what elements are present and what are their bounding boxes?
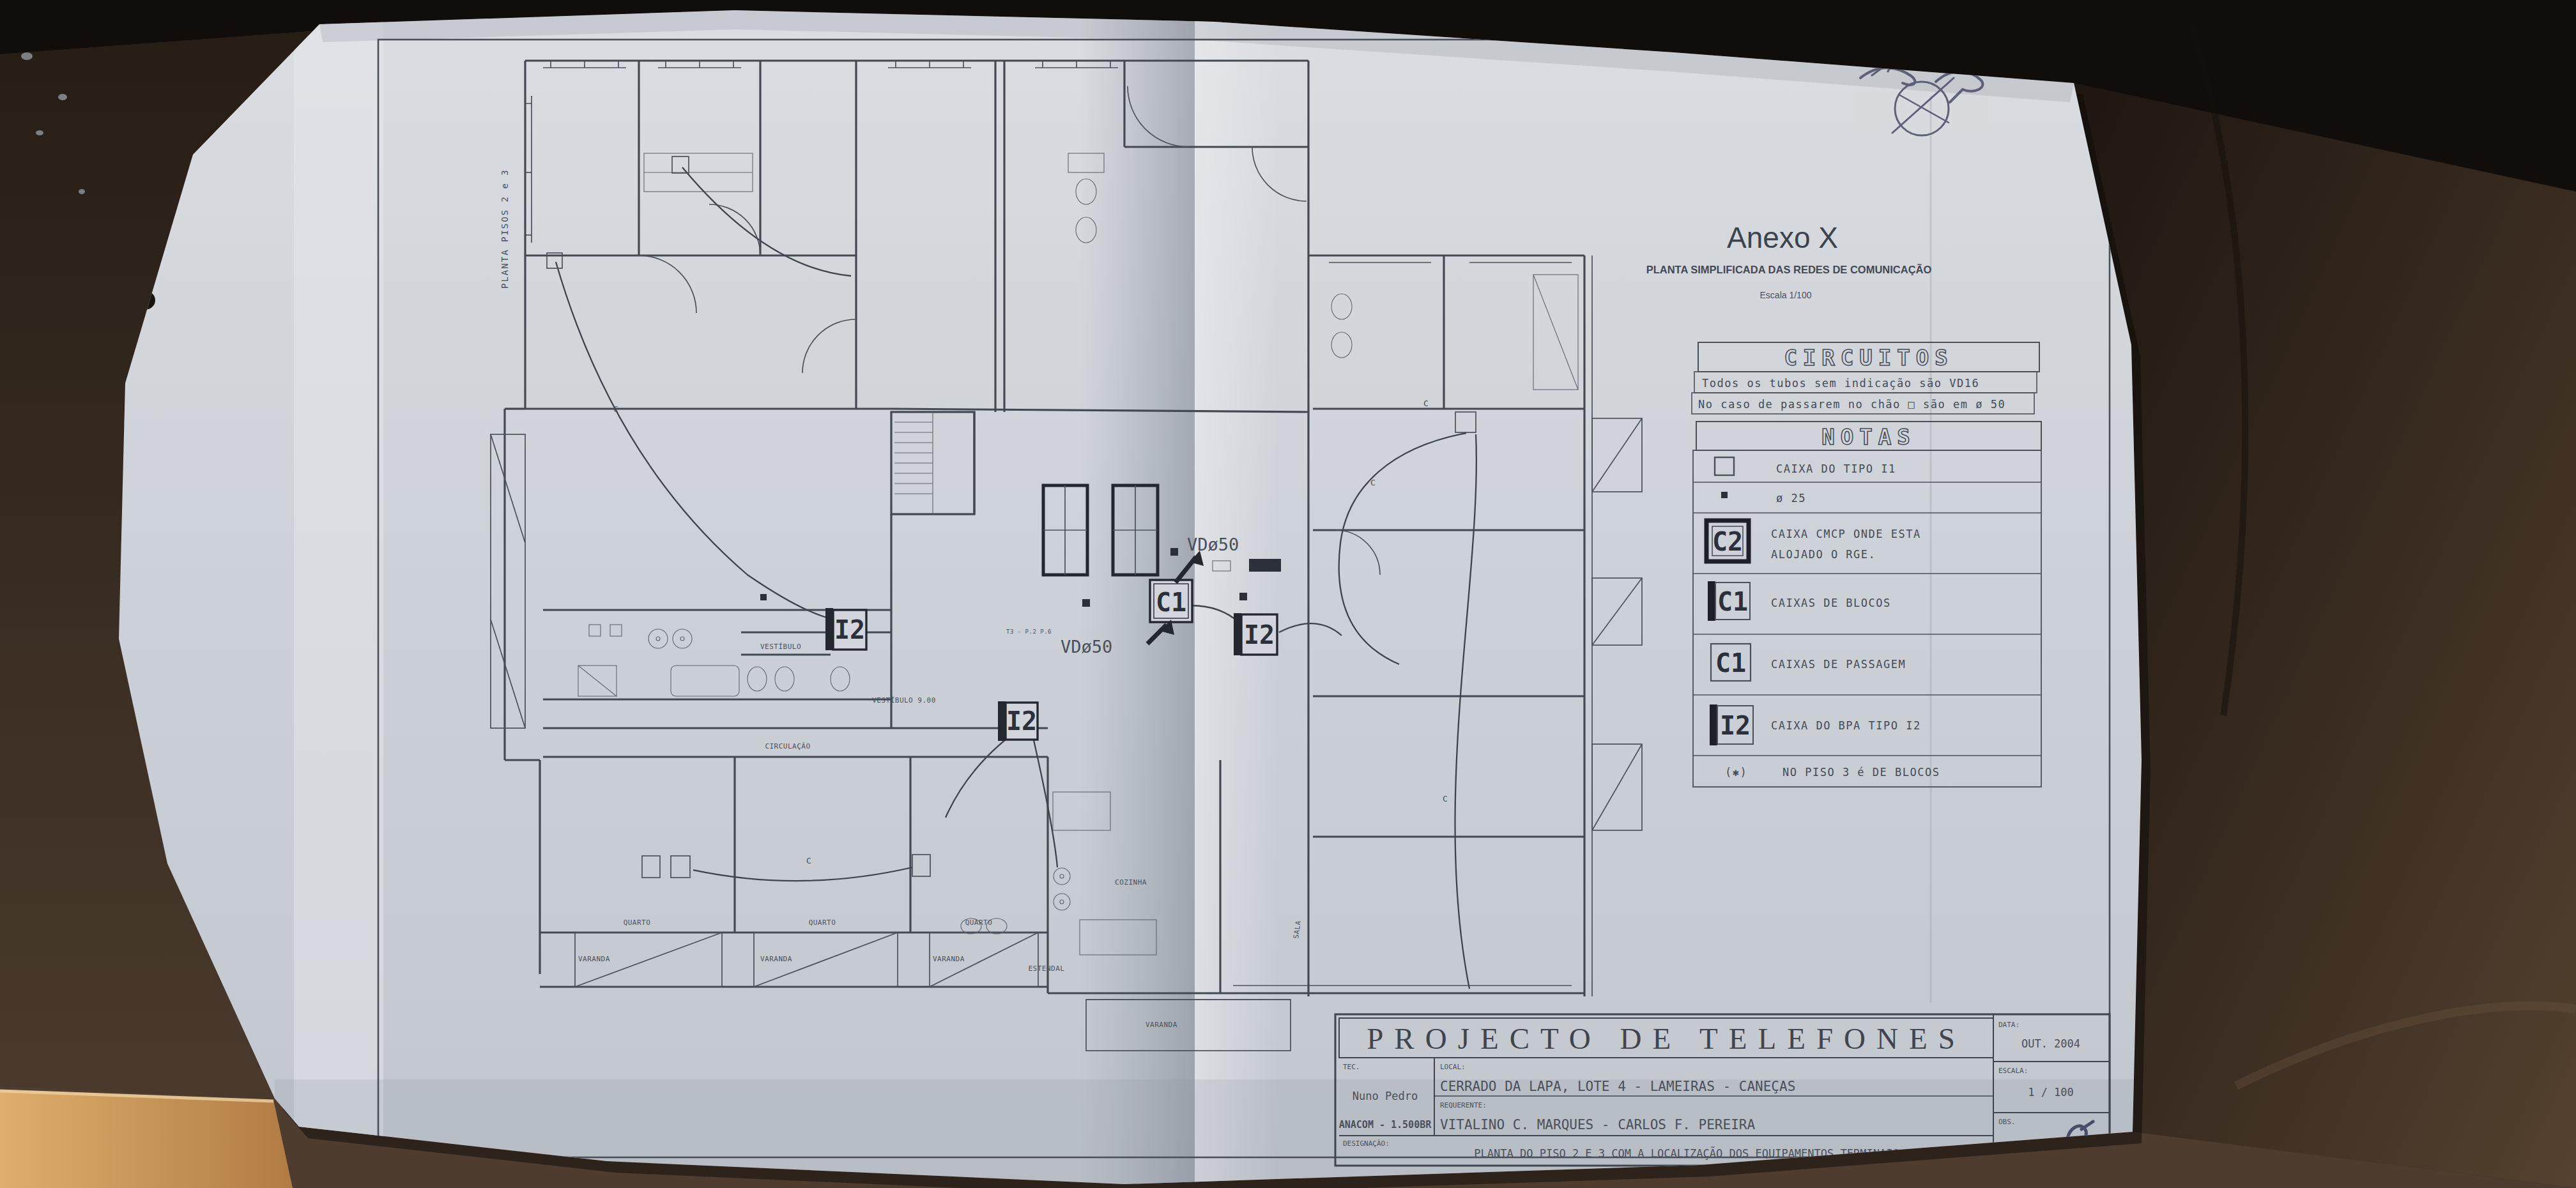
tec-label: TEC. (1343, 1063, 1360, 1071)
marker-c1: C1 (1150, 580, 1192, 622)
legend-footnote: NO PISO 3 é DE BLOCOS (1782, 766, 1940, 779)
svg-text:COZINHA: COZINHA (1115, 878, 1147, 887)
svg-text:VARANDA: VARANDA (578, 955, 610, 963)
legend-label-c2: CAIXA CMCP ONDE ESTA (1771, 528, 1921, 540)
annex-subtitle: PLANTA SIMPLIFICADA DAS REDES DE COMUNIC… (1646, 263, 1932, 275)
tec-id: ANACOM - 1.500BR (1339, 1119, 1432, 1131)
svg-text:C: C (1370, 478, 1376, 487)
svg-text:C: C (1443, 794, 1448, 803)
data-value: OUT. 2004 (2021, 1037, 2080, 1050)
tan-surface-corner (0, 1090, 293, 1188)
marker-i2-right: I2 (1234, 613, 1277, 655)
svg-text:I2: I2 (834, 615, 865, 644)
requerente-label: REQUERENTE: (1440, 1101, 1487, 1109)
legend-label-i1: CAIXA DO TIPO I1 (1776, 462, 1896, 475)
svg-text:VARANDA: VARANDA (1146, 1021, 1177, 1029)
svg-text:C1: C1 (1717, 587, 1748, 616)
legend-symbol-c2: C2 (1706, 521, 1749, 561)
svg-text:I2: I2 (1006, 706, 1037, 736)
svg-text:C: C (613, 404, 618, 414)
titleblock-title: PROJECTO DE TELEFONES (1367, 1022, 1966, 1055)
svg-text:C2: C2 (1712, 527, 1743, 556)
vd50-label-bottom: VDø50 (1061, 637, 1112, 657)
legend-label-o25: ø 25 (1776, 492, 1806, 505)
circuits-line2: No caso de passarem no chão □ são em ø 5… (1698, 398, 2005, 411)
legend-label-c1-passagem: CAIXAS DE PASSAGEM (1771, 658, 1906, 671)
legend-label-i2: CAIXA DO BPA TIPO I2 (1771, 719, 1921, 732)
marker-i2-bottom: I2 (998, 701, 1038, 741)
svg-text:ESTENDAL: ESTENDAL (1029, 964, 1065, 973)
legend-footnote-symbol: (✱) (1725, 766, 1747, 779)
photo-of-telephone-project-drawing: PLANTA PISOS 2 e 3 (0, 0, 2576, 1188)
legend-symbol-c1-passagem: C1 (1711, 644, 1751, 681)
notes-title: NOTAS (1821, 424, 1915, 450)
svg-text:C: C (806, 856, 811, 865)
legend-symbol-c1-blocos: C1 (1708, 581, 1750, 621)
side-plan-label: PLANTA PISOS 2 e 3 (500, 169, 510, 289)
requerente-value: VITALINO C. MARQUES - CARLOS F. PEREIRA (1440, 1117, 1755, 1132)
sofa-right-cushion (2074, 83, 2576, 1188)
annex-scale: Escala 1/100 (1760, 290, 1812, 300)
data-label: DATA: (1998, 1021, 2020, 1029)
svg-text:QUARTO: QUARTO (624, 918, 651, 927)
local-value: CERRADO DA LAPA, LOTE 4 - LAMEIRAS - CAN… (1440, 1079, 1795, 1094)
legend-label-c2-line2: ALOJADO O RGE. (1771, 548, 1876, 561)
svg-text:VESTÍBULO 9.00: VESTÍBULO 9.00 (872, 696, 936, 704)
svg-text:VARANDA: VARANDA (933, 955, 965, 963)
local-label: LOCAL: (1440, 1063, 1466, 1071)
svg-text:C1: C1 (1715, 648, 1746, 678)
designacao-label: DESIGNAÇÃO: (1343, 1139, 1390, 1148)
tec-name: Nuno Pedro (1353, 1090, 1418, 1102)
svg-text:C1: C1 (1156, 588, 1186, 617)
escala-value: 1 / 100 (2028, 1086, 2074, 1099)
annex-title: Anexo X (1727, 221, 1838, 254)
svg-text:QUARTO: QUARTO (965, 918, 993, 927)
svg-text:QUARTO: QUARTO (809, 918, 836, 927)
vd50-label-top: VDø50 (1187, 535, 1239, 554)
circuits-title: CIRCUITOS (1784, 345, 1953, 370)
escala-label: ESCALA: (1998, 1067, 2028, 1075)
svg-text:T3 - P.2 P.6: T3 - P.2 P.6 (1006, 628, 1052, 635)
marker-i2-left: I2 (825, 608, 866, 650)
svg-text:VARANDA: VARANDA (760, 955, 792, 963)
svg-text:I2: I2 (1244, 620, 1275, 650)
svg-text:C: C (1423, 399, 1429, 408)
circuits-line1: Todos os tubos sem indicação são VD16 (1702, 377, 1979, 390)
svg-text:VESTÍBULO: VESTÍBULO (760, 643, 801, 651)
legend-symbol-i2: I2 (1710, 704, 1753, 745)
legend-label-c1-blocos: CAIXAS DE BLOCOS (1771, 597, 1891, 609)
svg-text:I2: I2 (1720, 711, 1751, 740)
obs-label: OBS. (1998, 1118, 2016, 1126)
svg-text:CIRCULAÇÃO: CIRCULAÇÃO (765, 742, 810, 750)
legend-symbol-dot (1721, 492, 1728, 498)
